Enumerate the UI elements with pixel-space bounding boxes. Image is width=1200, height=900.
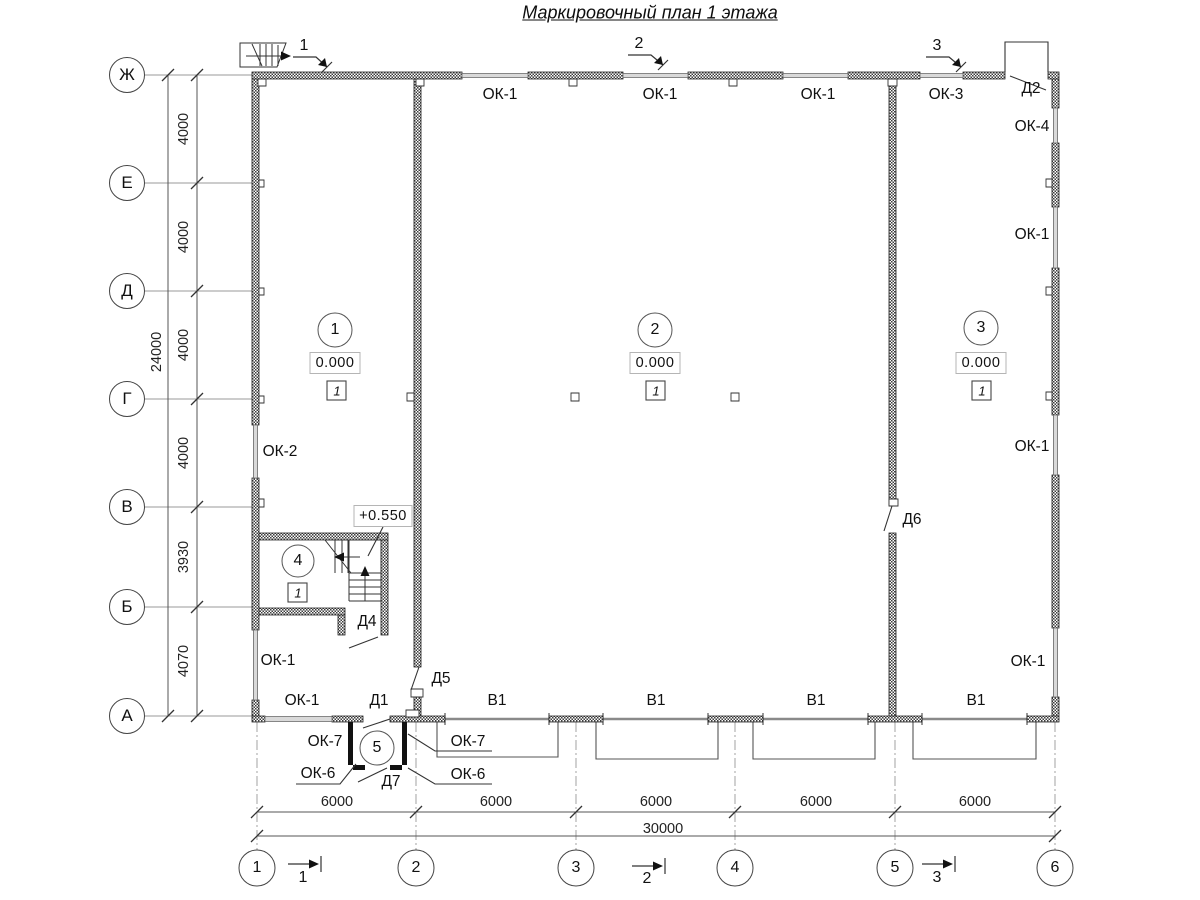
section-mark-lines [288, 55, 966, 874]
axis-row-circle [110, 274, 145, 309]
type-mark-box [646, 381, 665, 400]
axis-row-lines [145, 75, 252, 716]
room-number-circle [360, 731, 394, 765]
type-mark-box [288, 583, 307, 602]
gate-recess-outlines [437, 722, 1036, 759]
axis-row-circle [110, 382, 145, 417]
elevation-box [630, 353, 680, 374]
room-number-circle [318, 313, 352, 347]
vestibule-walls [348, 722, 407, 770]
axis-col-circle [398, 850, 434, 886]
elevation-box [310, 353, 360, 374]
room-number-circle [964, 311, 998, 345]
dimension-slashes [162, 69, 1061, 842]
room-number-circle [638, 313, 672, 347]
axis-row-circle [110, 699, 145, 734]
axis-col-circle [1037, 850, 1073, 886]
stair-arrowheads [281, 52, 370, 577]
room-number-circle [282, 545, 314, 577]
axis-row-circle [110, 590, 145, 625]
axis-row-circle [110, 490, 145, 525]
axis-row-circle [110, 166, 145, 201]
stair-elevation-box [354, 506, 412, 527]
axis-col-circle [558, 850, 594, 886]
door-swings-and-leaders [296, 42, 1048, 784]
plan-linework [0, 0, 1200, 900]
axis-col-circle [877, 850, 913, 886]
axis-col-circle [717, 850, 753, 886]
axis-row-circle [110, 58, 145, 93]
axis-col-lines [257, 722, 1055, 850]
type-mark-box [972, 381, 991, 400]
axis-col-circle [239, 850, 275, 886]
floor-plan-drawing: Маркировочный план 1 этажа ЖЕДГВБА123456… [0, 0, 1200, 900]
elevation-box [956, 353, 1006, 374]
type-mark-box [327, 381, 346, 400]
